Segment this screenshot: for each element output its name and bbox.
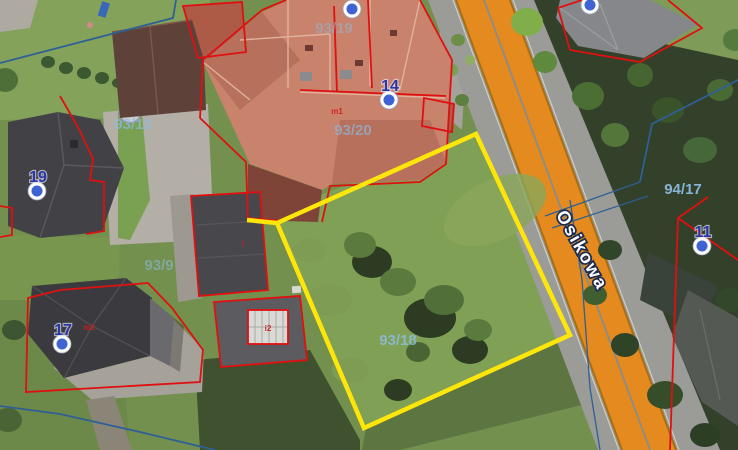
- parcel-number-label: 93/19: [315, 20, 353, 37]
- map-marker[interactable]: 11: [693, 224, 712, 255]
- marker-dot-icon: [347, 4, 358, 15]
- marker-dot-icon: [32, 186, 43, 197]
- marker-dot-icon: [57, 339, 68, 350]
- aerial-basemap: 93/1393/1993/2093/1893/994/17m1ii2m2Osik…: [0, 0, 738, 450]
- map-marker[interactable]: 14: [380, 78, 399, 109]
- marker-number-label: 11: [695, 224, 712, 241]
- map-marker[interactable]: [343, 0, 361, 18]
- marker-number-label: 19: [29, 169, 47, 186]
- parcel-number-label: 94/17: [664, 181, 702, 198]
- map-marker[interactable]: [581, 0, 599, 14]
- marker-number-label: 17: [54, 322, 72, 339]
- marker-dot-icon: [585, 0, 596, 11]
- building-annotation: i2: [265, 324, 272, 333]
- building-skylight: [214, 296, 307, 367]
- map-marker[interactable]: 17: [53, 322, 72, 353]
- marker-number-label: 14: [381, 78, 399, 95]
- building-flat-dark: [191, 192, 268, 296]
- parcel-number-label: 93/13: [114, 116, 152, 133]
- marker-dot-icon: [384, 95, 395, 106]
- satellite-map[interactable]: 93/1393/1993/2093/1893/994/17m1ii2m2Osik…: [0, 0, 738, 450]
- marker-dot-icon: [697, 241, 708, 252]
- building-annotation: i: [242, 239, 244, 248]
- parcel-number-label: 93/20: [334, 122, 372, 139]
- building-annotation: m2: [83, 323, 95, 332]
- parcel-number-label: 93/18: [379, 332, 417, 349]
- parcel-number-label: 93/9: [144, 257, 173, 274]
- map-marker[interactable]: 19: [28, 169, 47, 200]
- building-annotation: m1: [331, 107, 343, 116]
